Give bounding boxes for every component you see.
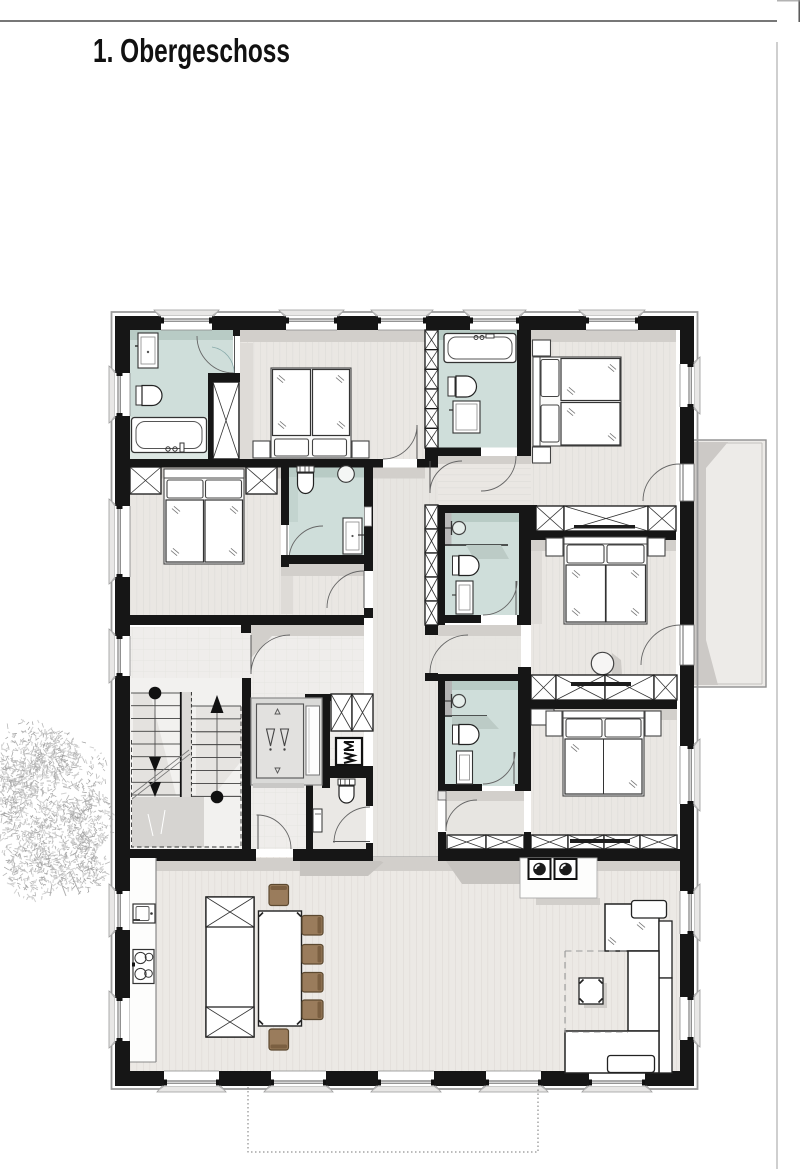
- svg-text:1. Obergeschoss: 1. Obergeschoss: [93, 32, 290, 69]
